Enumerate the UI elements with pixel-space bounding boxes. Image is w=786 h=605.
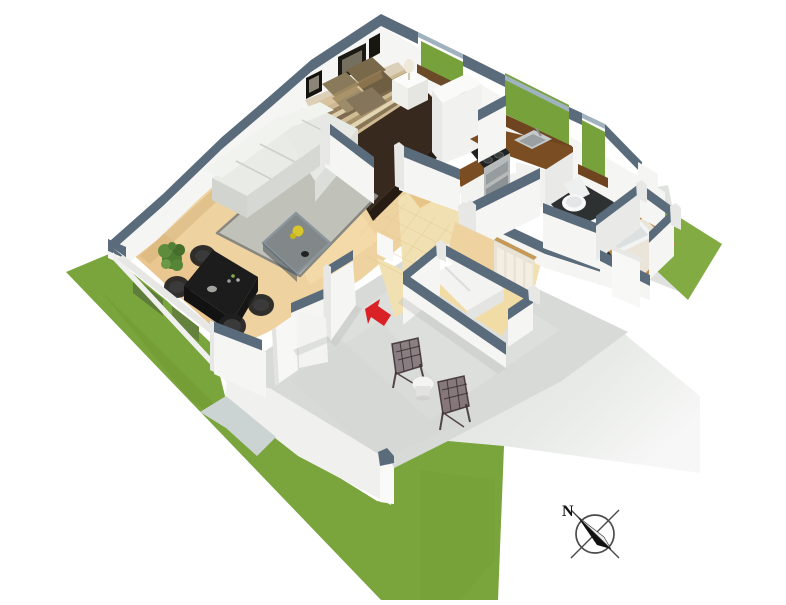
svg-text:N: N: [562, 503, 574, 520]
